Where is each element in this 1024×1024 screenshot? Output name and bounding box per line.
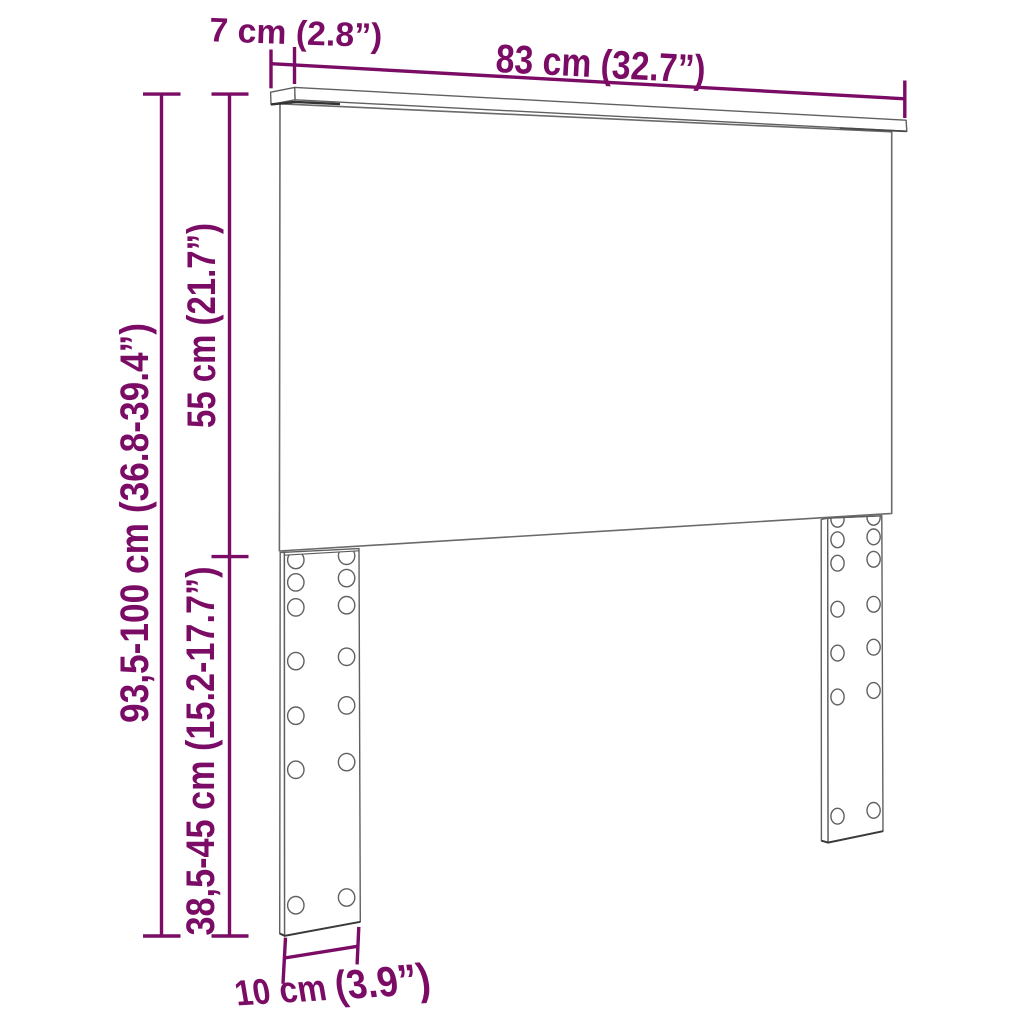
svg-text:55 cm (21.7”): 55 cm (21.7”) xyxy=(180,223,224,428)
svg-text:10 cm (3.9”): 10 cm (3.9”) xyxy=(230,954,434,1015)
svg-text:38,5-45 cm (15.2-17.7”): 38,5-45 cm (15.2-17.7”) xyxy=(179,567,223,936)
svg-text:83 cm (32.7”): 83 cm (32.7”) xyxy=(495,37,707,92)
svg-text:93,5-100 cm (36.8-39.4”): 93,5-100 cm (36.8-39.4”) xyxy=(113,323,157,723)
svg-text:7 cm (2.8”): 7 cm (2.8”) xyxy=(209,11,383,55)
